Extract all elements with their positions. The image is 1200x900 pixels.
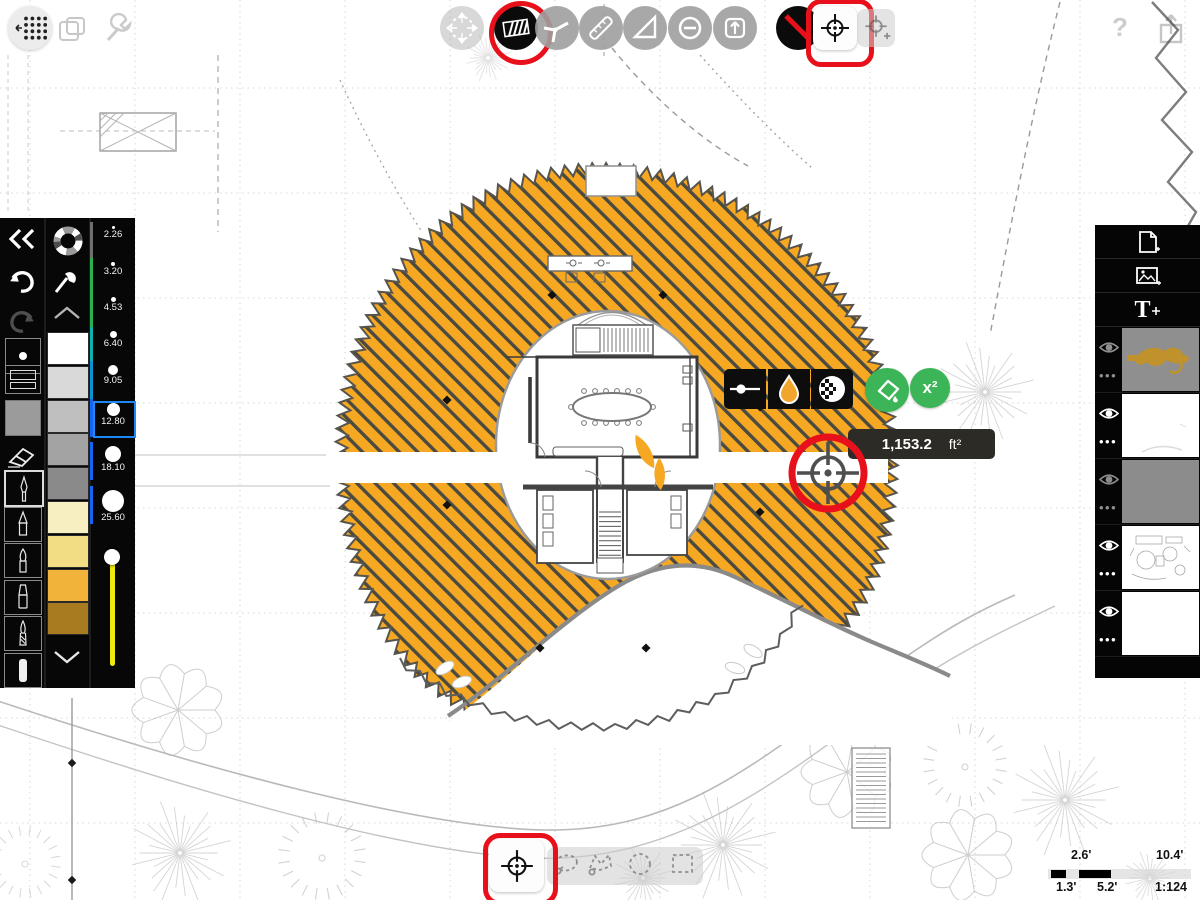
scale-lower-mid: 5.2' — [1097, 880, 1117, 894]
tree-star — [939, 342, 1034, 441]
fill-bucket-icon — [871, 374, 903, 406]
pattern-opacity-button[interactable] — [811, 369, 853, 409]
swatch-scroll-down[interactable] — [52, 650, 82, 664]
size-color-strip — [90, 258, 93, 296]
stroke-size-option[interactable]: 4.53 — [92, 297, 134, 313]
scale-bar: 2.6' 10.4' 1.3' 5.2' 1:124 — [1045, 846, 1197, 898]
color-swatch[interactable] — [47, 433, 89, 466]
duplicate-view-button[interactable] — [54, 12, 90, 48]
layer-more-button[interactable]: ••• — [1099, 566, 1117, 581]
set-square-button[interactable] — [623, 6, 667, 50]
size-color-strip — [90, 222, 93, 260]
share-button[interactable] — [1152, 10, 1190, 48]
color-wheel-button[interactable] — [52, 225, 84, 257]
ruler-icon — [585, 12, 617, 44]
droplet-icon — [777, 374, 801, 404]
color-swatch[interactable] — [47, 535, 89, 568]
stroke-size-label: 25.60 — [92, 512, 134, 523]
add-image-icon — [1134, 264, 1162, 288]
pen-tool-ink-pen[interactable] — [4, 543, 42, 578]
layer-more-button[interactable]: ••• — [1099, 632, 1117, 647]
help-button[interactable]: ? — [1112, 12, 1128, 43]
stroke-weight-button[interactable] — [724, 369, 766, 409]
stroke-size-dot — [108, 365, 118, 375]
stroke-size-dot — [105, 446, 121, 462]
scale-segment-large — [1079, 870, 1111, 878]
layer-thumbnail[interactable] — [1122, 394, 1199, 457]
slider-track[interactable] — [110, 558, 115, 666]
polygon-lasso-tool[interactable] — [589, 855, 611, 875]
color-swatch[interactable] — [47, 332, 89, 365]
stroke-size-option[interactable]: 18.10 — [92, 446, 134, 473]
color-swatch[interactable] — [47, 400, 89, 433]
pen-tool-marker[interactable] — [4, 580, 42, 615]
ellipse-select-tool[interactable] — [630, 854, 650, 874]
layer-row-5[interactable]: ••• — [1095, 591, 1200, 657]
stroke-size-label: 2.26 — [92, 229, 134, 240]
collapse-sidebar-button[interactable] — [8, 228, 36, 250]
eraser-button[interactable] — [6, 442, 38, 470]
pen-tool-airbrush-tube[interactable] — [4, 653, 42, 688]
stroke-size-option[interactable]: 2.26 — [92, 226, 134, 240]
redo-button[interactable] — [8, 308, 36, 334]
scale-upper-large: 10.4' — [1156, 848, 1183, 862]
line-style-button[interactable] — [5, 365, 41, 394]
eyedropper-button[interactable] — [52, 266, 82, 296]
eye-icon[interactable] — [1099, 538, 1119, 553]
grid-drag-icon — [13, 13, 47, 43]
leader-lines-button[interactable] — [535, 6, 579, 50]
checker-ball-icon — [817, 374, 847, 404]
technical-pen-icon — [12, 474, 36, 504]
area-unit: ft² — [949, 436, 961, 452]
layer-row-2[interactable]: ••• — [1095, 393, 1200, 459]
add-text-button[interactable]: T — [1095, 293, 1200, 327]
color-swatch[interactable] — [47, 467, 89, 500]
plan-sketch-thumb — [1122, 526, 1199, 589]
sidebar-divider — [44, 218, 46, 688]
stroke-size-label: 6.40 — [92, 338, 134, 349]
stroke-size-dot — [110, 331, 117, 338]
rect-select-tool[interactable] — [673, 855, 692, 872]
plus-icon — [1151, 304, 1161, 316]
scale-segment-small — [1051, 870, 1066, 878]
selection-tools-icons — [552, 852, 702, 880]
top-notch — [586, 166, 636, 196]
grid-drag-button[interactable] — [8, 6, 52, 50]
brush-dot — [19, 352, 27, 360]
ink-pen-icon — [11, 546, 35, 576]
ruler-button[interactable] — [579, 6, 623, 50]
export-up-icon — [720, 13, 750, 43]
x-squared-label: x² — [922, 378, 937, 398]
eye-icon[interactable] — [1099, 406, 1119, 421]
color-wheel-icon — [52, 225, 84, 257]
duplicate-view-icon — [54, 12, 90, 48]
help-label: ? — [1112, 12, 1128, 42]
color-swatch[interactable] — [47, 366, 89, 399]
stroke-size-dot — [102, 490, 124, 512]
new-page-icon — [1135, 229, 1161, 255]
area-value: 1,153.2 — [882, 436, 932, 453]
size-color-strip — [90, 293, 93, 331]
area-target-add-icon — [860, 12, 892, 44]
new-page-button[interactable] — [1095, 225, 1200, 259]
gold-sketch-thumb — [1122, 328, 1199, 391]
layer-row-3[interactable]: ••• — [1095, 459, 1200, 525]
layer-more-button[interactable]: ••• — [1099, 434, 1117, 449]
scale-strip — [1048, 869, 1191, 879]
stroke-size-label: 9.05 — [92, 375, 134, 386]
chevron-up-icon — [52, 306, 82, 320]
fill-bucket-button[interactable] — [865, 368, 909, 412]
drawing-canvas[interactable] — [0, 0, 1200, 900]
layer-row-1[interactable]: ••• — [1095, 327, 1200, 393]
size-color-strip — [90, 486, 93, 524]
add-image-button[interactable] — [1095, 259, 1200, 293]
target-select-highlight — [483, 833, 558, 900]
area-formula-button[interactable]: x² — [910, 368, 950, 408]
stroke-size-option[interactable]: 25.60 — [92, 490, 134, 523]
area-target-add-button[interactable] — [857, 9, 895, 47]
pencil-icon — [11, 509, 35, 539]
subtract-circle-icon — [675, 13, 705, 43]
size-color-strip — [90, 361, 93, 399]
chevron-down-icon — [52, 650, 82, 664]
leader-lines-icon — [541, 12, 573, 44]
undo-button[interactable] — [8, 268, 36, 294]
eyedropper-icon — [52, 266, 82, 296]
tree-dashed — [278, 812, 365, 899]
share-icon — [1152, 10, 1190, 48]
layer-more-button[interactable]: ••• — [1099, 368, 1117, 383]
pen-tool-paint-brush[interactable] — [4, 616, 42, 651]
eye-icon[interactable] — [1099, 340, 1119, 355]
scale-ratio: 1:124 — [1155, 880, 1187, 894]
stroke-size-option[interactable]: 9.05 — [92, 365, 134, 386]
layer-thumbnail[interactable] — [1122, 526, 1199, 589]
subtract-circle-button[interactable] — [668, 6, 712, 50]
selected-size-box — [93, 401, 136, 438]
layer-more-button[interactable]: ••• — [1099, 500, 1117, 515]
set-square-icon — [630, 13, 660, 43]
airbrush-tube-icon — [11, 655, 35, 685]
pen-tool-pencil[interactable] — [4, 507, 42, 542]
faint-thumb — [1122, 394, 1199, 457]
layer-thumbnail[interactable] — [1122, 592, 1199, 655]
redo-icon — [8, 308, 36, 334]
stroke-size-label: 4.53 — [92, 302, 134, 313]
eye-icon[interactable] — [1099, 472, 1119, 487]
color-droplet-button[interactable] — [768, 369, 810, 409]
tree-star — [1014, 745, 1119, 855]
export-up-button[interactable] — [713, 6, 757, 50]
line-thick — [10, 370, 36, 380]
eraser-icon — [6, 442, 38, 470]
stroke-size-label: 18.10 — [92, 462, 134, 473]
eye-icon[interactable] — [1099, 604, 1119, 619]
color-swatch[interactable] — [47, 602, 89, 635]
scale-upper-small: 2.6' — [1071, 848, 1091, 862]
collapse-chevrons-icon — [8, 228, 36, 250]
text-tool-label: T — [1134, 298, 1150, 322]
tree-petal — [922, 810, 1012, 900]
drawing-sidebar: 2.263.204.536.409.0512.8018.1025.60 — [0, 218, 135, 688]
settings-wrench-button[interactable] — [98, 10, 136, 48]
layer-thumbnail[interactable] — [1122, 328, 1199, 391]
stroke-size-label: 3.20 — [92, 266, 134, 277]
color-swatch[interactable] — [47, 569, 89, 602]
undo-icon — [8, 268, 36, 294]
transform-move-button[interactable] — [440, 6, 484, 50]
layer-row-4[interactable]: ••• — [1095, 525, 1200, 591]
stroke-size-option[interactable]: 6.40 — [92, 331, 134, 349]
tree-star — [132, 801, 231, 900]
layers-panel: T ••• ••• — [1095, 225, 1200, 678]
stroke-weight-icon — [728, 382, 762, 396]
stroke-size-option[interactable]: 3.20 — [92, 262, 134, 277]
layer-thumbnail[interactable] — [1122, 460, 1199, 523]
tree-petal — [132, 665, 222, 756]
target-cursor[interactable] — [780, 425, 876, 521]
transform-move-icon — [445, 11, 479, 45]
marker-icon — [11, 582, 35, 612]
paint-brush-icon — [11, 619, 35, 649]
hatch-mini-toolbar — [724, 369, 853, 409]
wrench-icon — [98, 10, 136, 48]
current-color-well[interactable] — [5, 400, 41, 436]
line-thin — [10, 382, 36, 389]
swatch-scroll-up[interactable] — [52, 306, 82, 320]
pen-tool-technical-pen[interactable] — [4, 470, 44, 507]
size-color-strip — [90, 442, 93, 480]
scale-lower-small: 1.3' — [1056, 880, 1076, 894]
slider-knob[interactable] — [104, 549, 120, 565]
size-color-strip — [90, 327, 93, 365]
color-swatch[interactable] — [47, 501, 89, 534]
